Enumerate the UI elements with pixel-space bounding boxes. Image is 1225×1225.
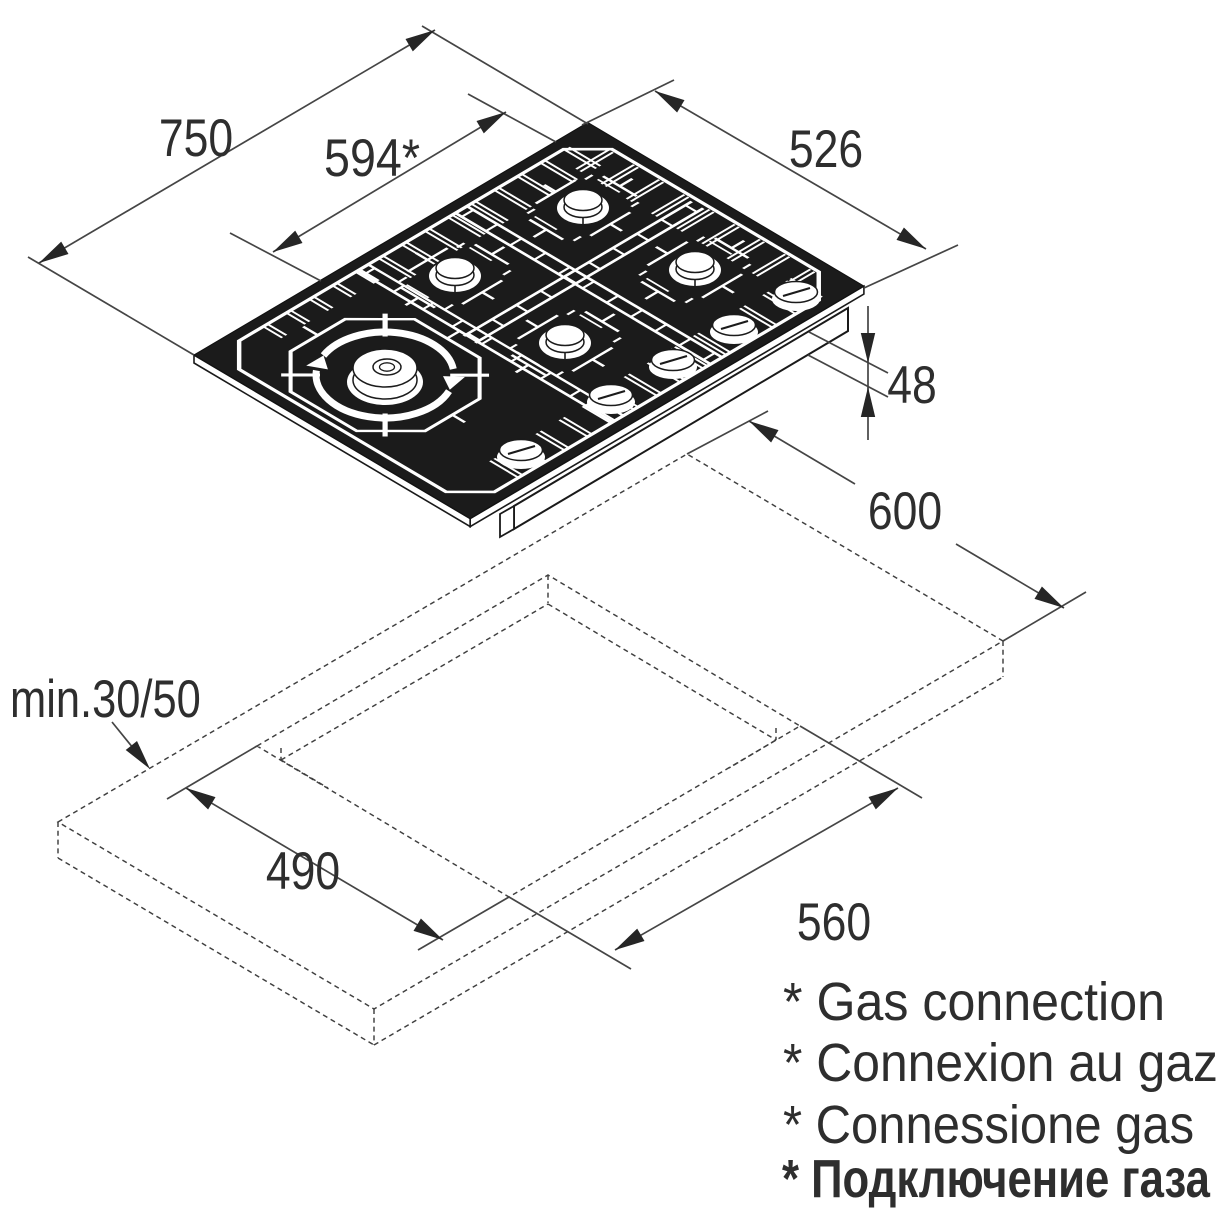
svg-text:min.30/50: min.30/50 [10,670,201,729]
svg-text:* Connexion au gaz: * Connexion au gaz [783,1033,1218,1093]
svg-text:* Подключение газа: * Подключение газа [782,1150,1211,1209]
svg-text:526: 526 [789,120,863,178]
svg-text:750: 750 [159,109,233,167]
svg-text:594*: 594* [324,128,420,187]
svg-text:600: 600 [868,482,942,540]
svg-text:490: 490 [266,842,340,900]
svg-text:* Connessione gas: * Connessione gas [783,1094,1194,1155]
svg-text:560: 560 [797,893,871,951]
svg-text:48: 48 [887,356,937,414]
svg-text:* Gas connection: * Gas connection [783,972,1165,1032]
